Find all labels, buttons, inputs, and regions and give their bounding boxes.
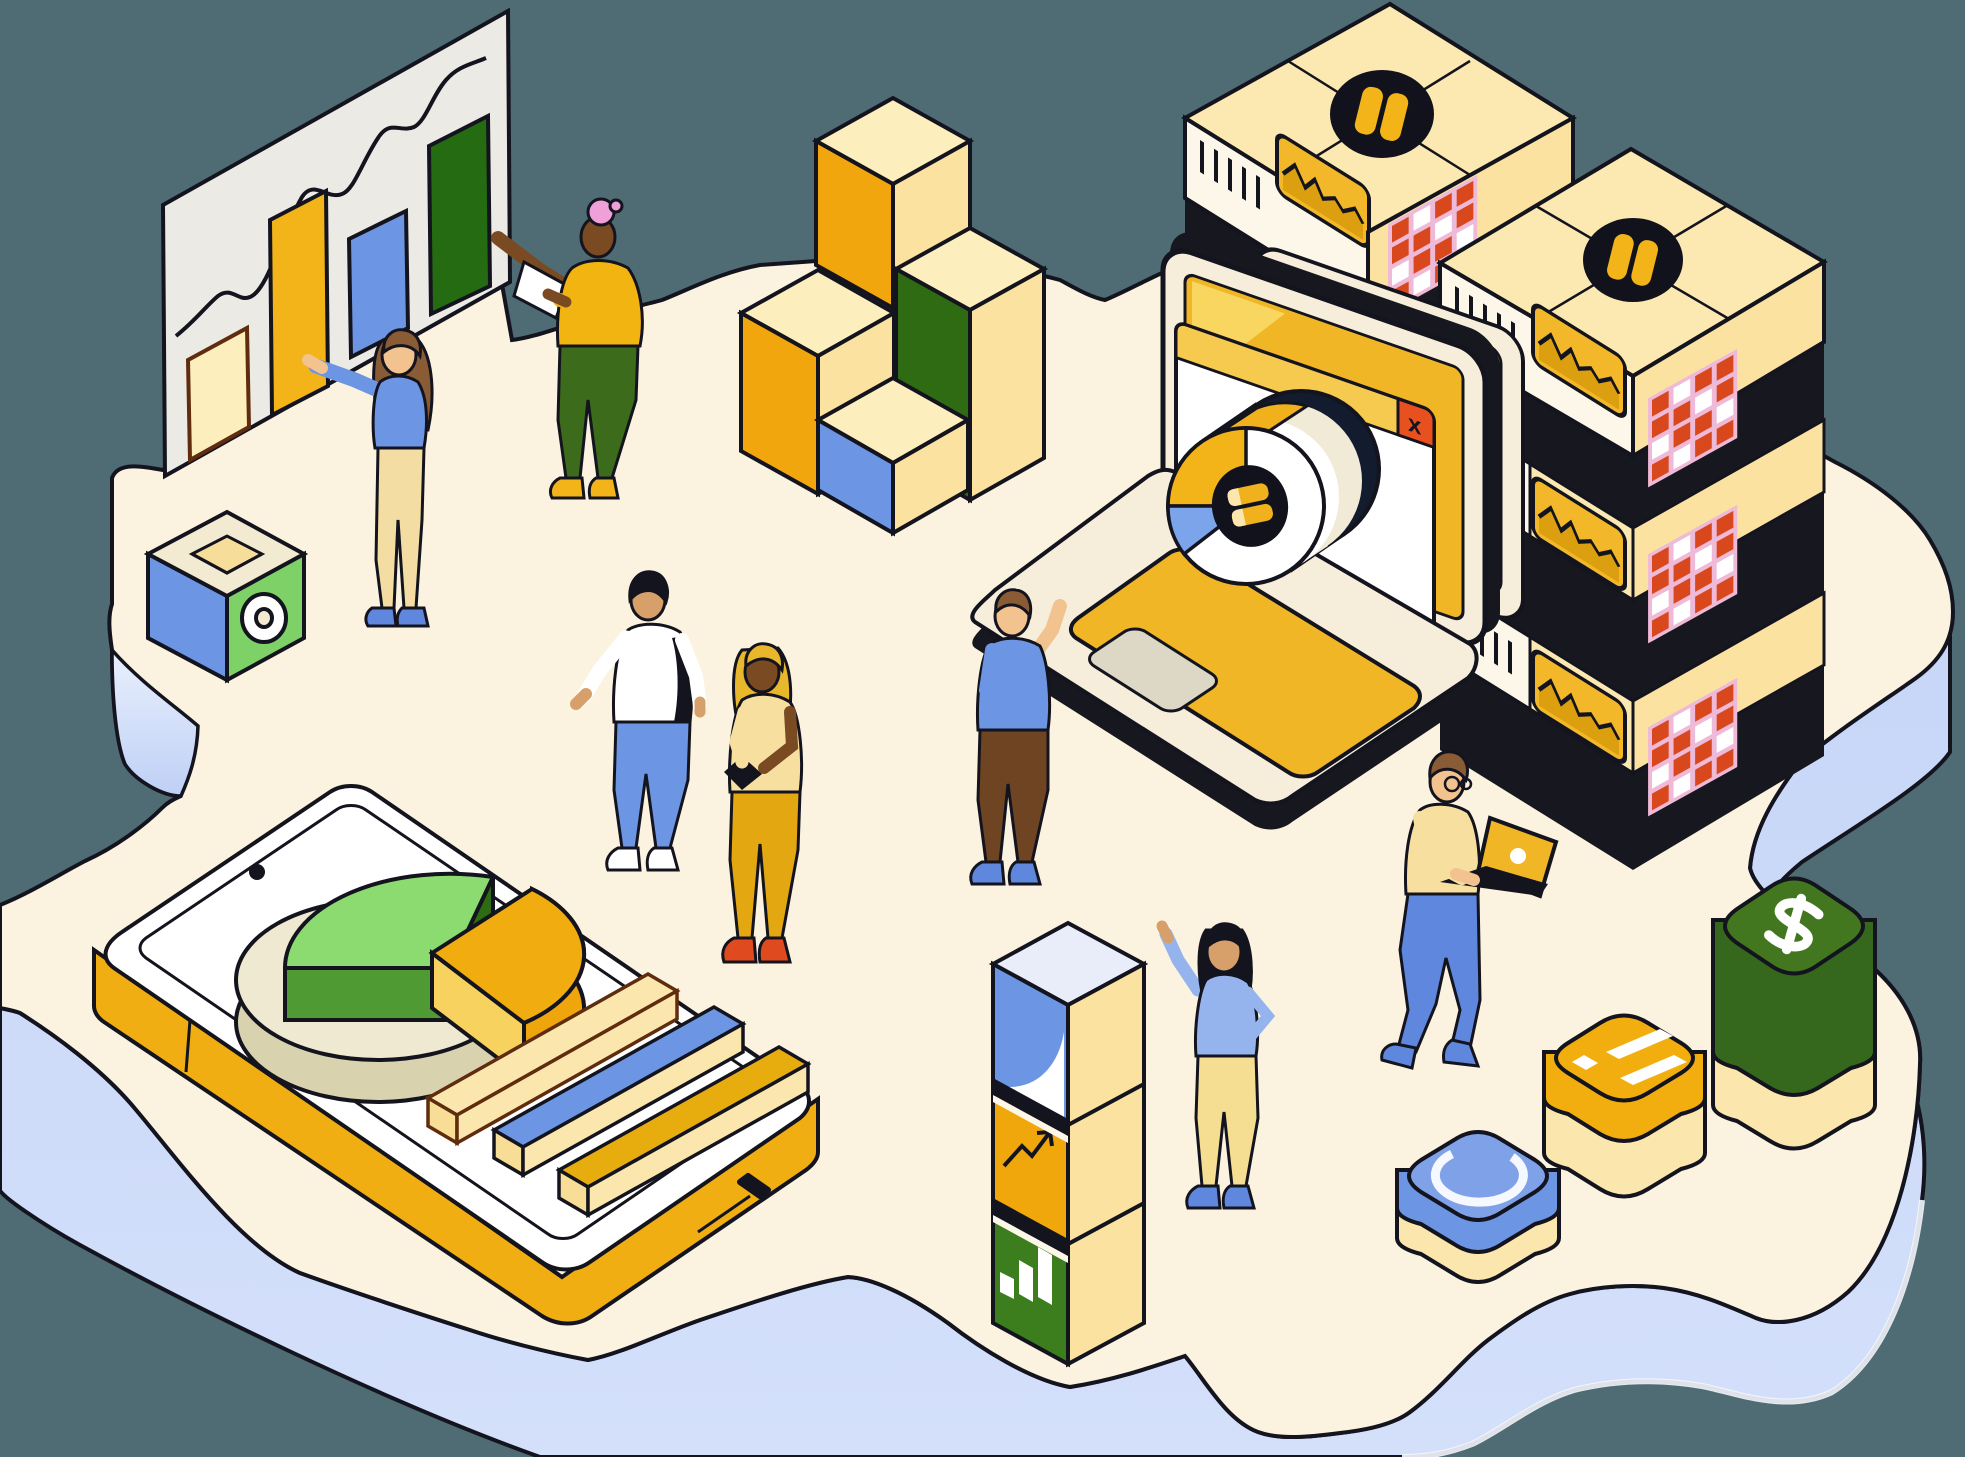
svg-text:x: x [1408, 410, 1422, 441]
